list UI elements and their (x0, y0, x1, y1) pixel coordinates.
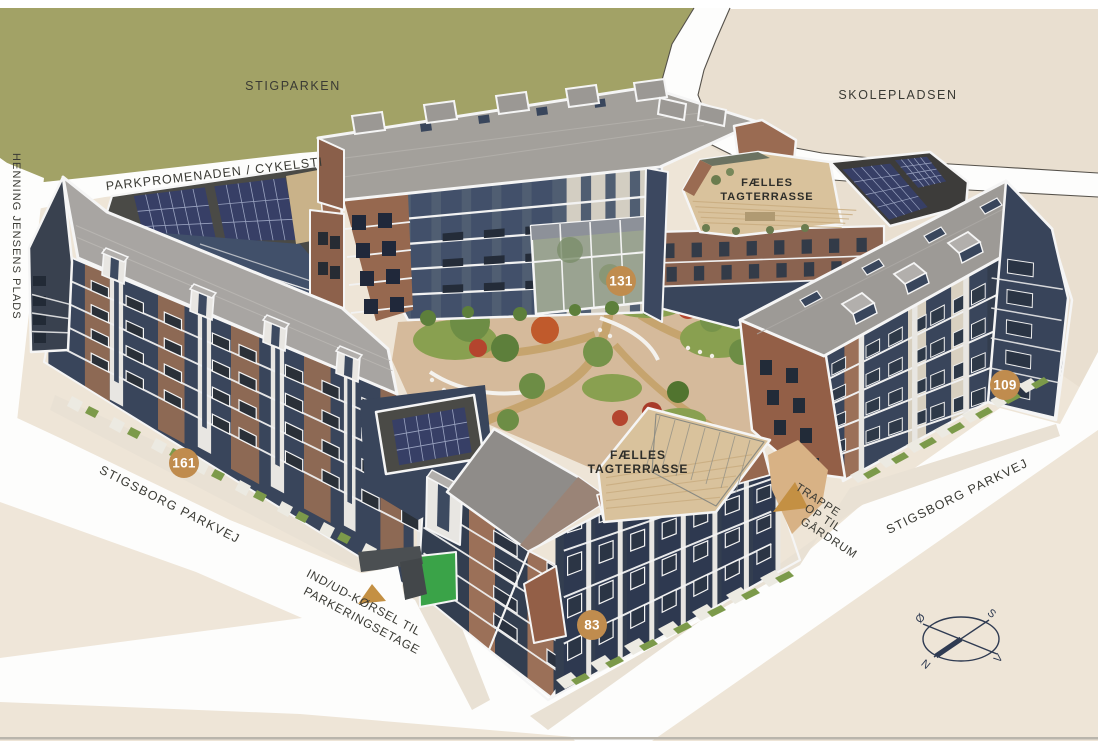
svg-text:TAGTERRASSE: TAGTERRASSE (720, 191, 813, 203)
svg-text:HENNING JENSENS PLADS: HENNING JENSENS PLADS (10, 153, 22, 320)
svg-text:161: 161 (172, 456, 196, 471)
svg-text:FÆLLES: FÆLLES (610, 448, 666, 462)
svg-text:131: 131 (609, 274, 633, 289)
svg-text:109: 109 (993, 378, 1016, 393)
svg-text:TAGTERRASSE: TAGTERRASSE (588, 462, 689, 476)
svg-text:83: 83 (584, 618, 600, 633)
svg-text:FÆLLES: FÆLLES (741, 177, 793, 189)
svg-text:STIGPARKEN: STIGPARKEN (245, 79, 341, 93)
svg-text:SKOLEPLADSEN: SKOLEPLADSEN (838, 88, 957, 102)
